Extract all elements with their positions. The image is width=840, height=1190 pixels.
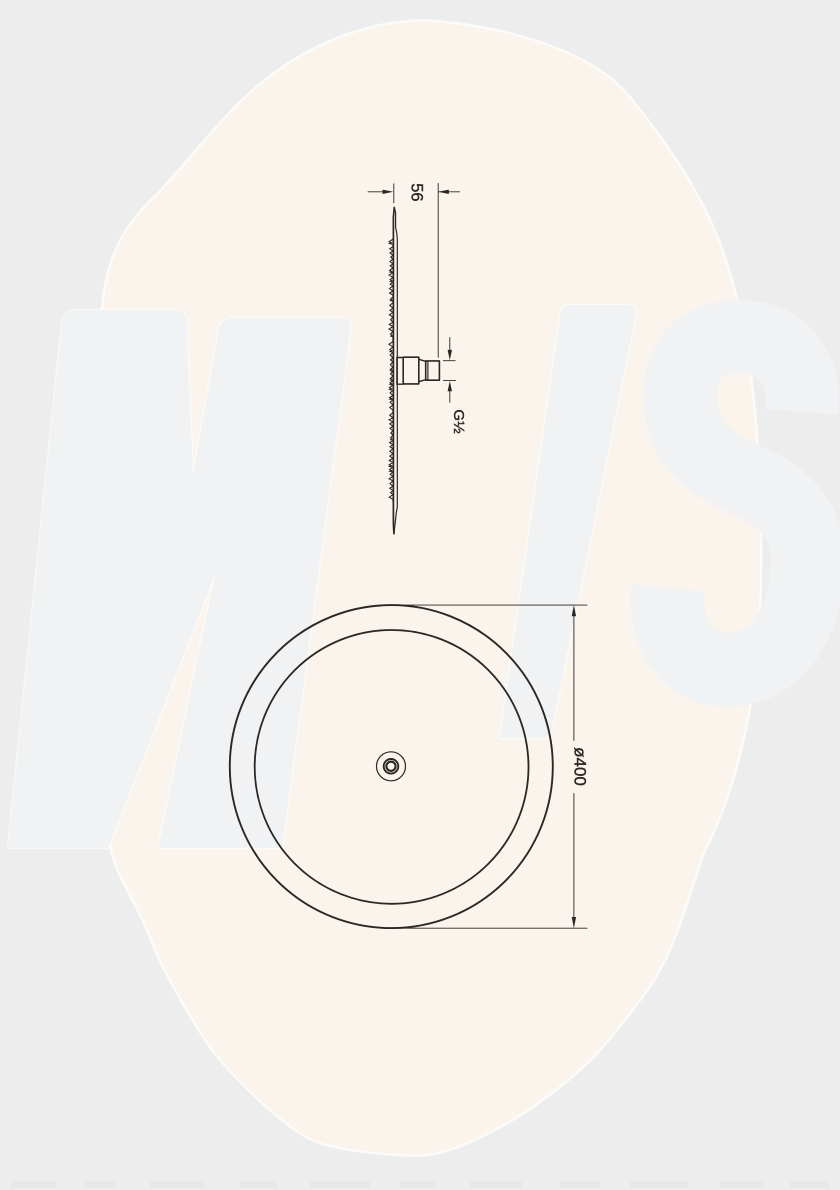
svg-text:ø400: ø400 <box>570 747 589 786</box>
svg-text:G½: G½ <box>450 409 467 434</box>
svg-text:56: 56 <box>407 183 425 201</box>
